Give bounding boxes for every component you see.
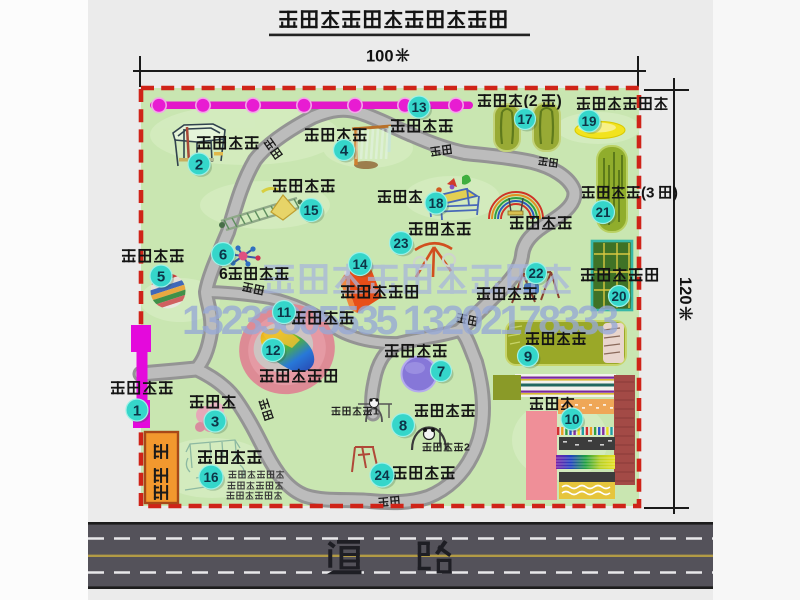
svg-text:): ) — [557, 93, 562, 110]
svg-text:13: 13 — [411, 100, 427, 115]
svg-text:3: 3 — [211, 413, 219, 430]
svg-text:20: 20 — [611, 289, 626, 304]
svg-text:6: 6 — [219, 266, 228, 283]
svg-text:11: 11 — [277, 305, 292, 320]
svg-text:(2: (2 — [524, 93, 538, 110]
svg-text:14: 14 — [352, 257, 368, 272]
svg-text:8: 8 — [399, 417, 407, 434]
svg-text:15: 15 — [303, 203, 319, 218]
svg-text:19: 19 — [581, 114, 596, 129]
svg-text:16: 16 — [203, 470, 219, 485]
svg-text:12: 12 — [265, 343, 280, 358]
svg-text:6: 6 — [219, 246, 227, 263]
svg-text:4: 4 — [340, 142, 349, 159]
svg-text:2: 2 — [195, 156, 203, 173]
svg-text:): ) — [673, 185, 678, 202]
svg-text:21: 21 — [595, 205, 611, 220]
svg-text:23: 23 — [393, 236, 409, 251]
svg-text:5: 5 — [157, 268, 165, 285]
svg-text:100: 100 — [366, 48, 394, 66]
svg-text:120: 120 — [676, 277, 694, 305]
svg-text:2: 2 — [464, 442, 470, 454]
svg-text:22: 22 — [528, 266, 543, 281]
svg-text:9: 9 — [524, 348, 532, 365]
svg-text:(3: (3 — [641, 185, 655, 202]
svg-text:1: 1 — [373, 406, 379, 418]
svg-text:1: 1 — [133, 402, 141, 419]
svg-text:7: 7 — [437, 363, 445, 380]
svg-text:10: 10 — [564, 412, 579, 427]
svg-text:17: 17 — [517, 112, 532, 127]
svg-text:24: 24 — [374, 468, 390, 483]
svg-text:18: 18 — [428, 196, 444, 211]
